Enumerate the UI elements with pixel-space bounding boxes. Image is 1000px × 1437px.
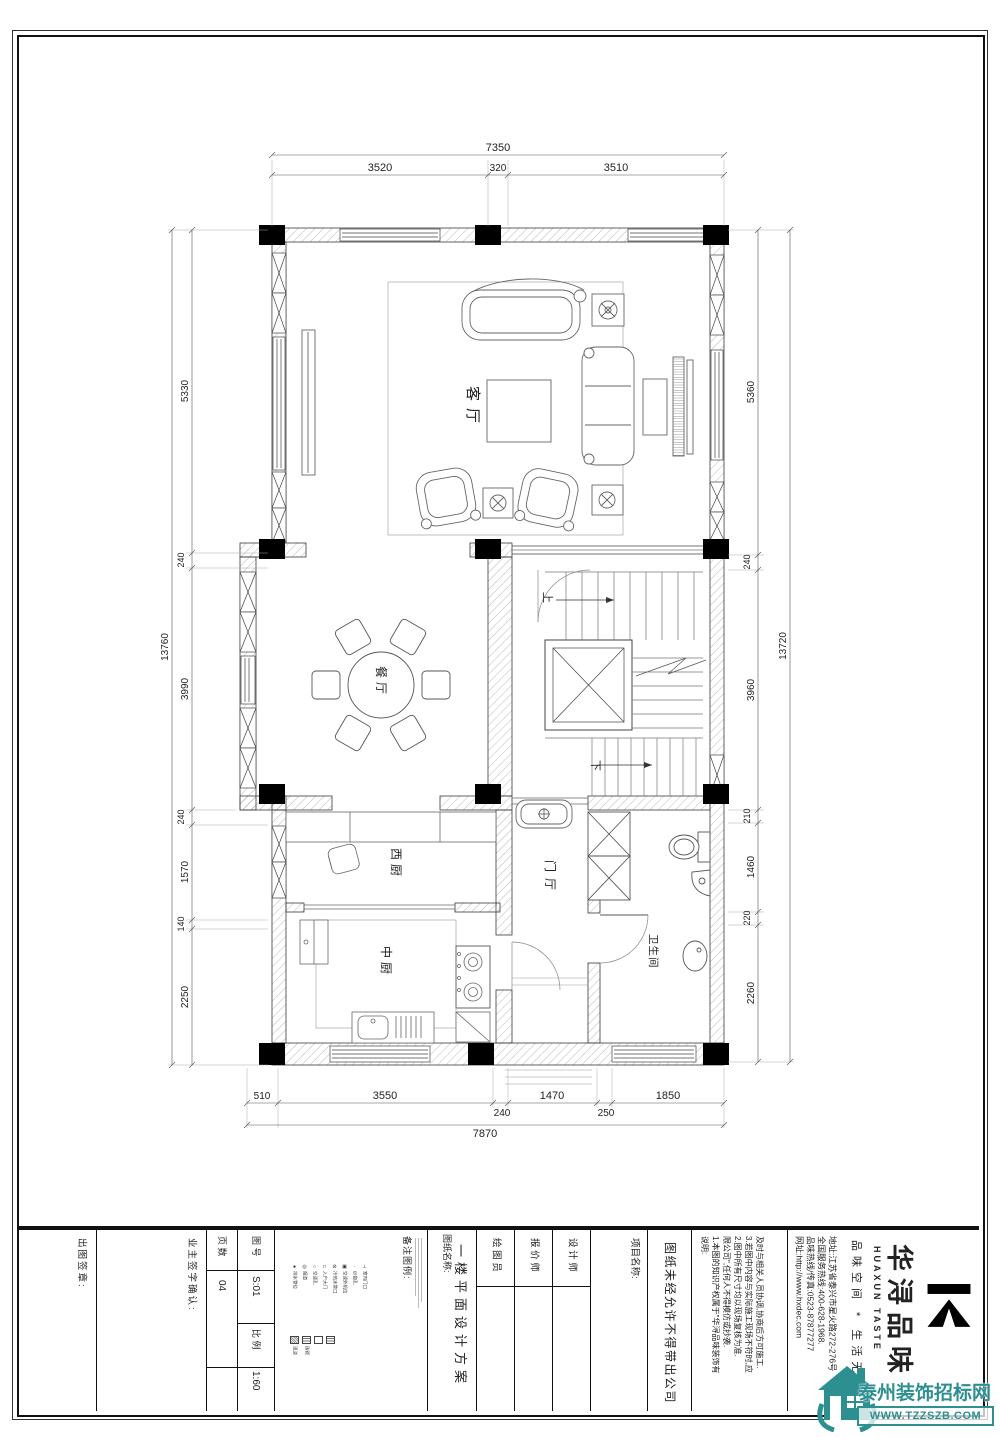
sheet-name: 一楼平面设计方案 [454, 1244, 467, 1388]
cell-figno-scale: 图 号 S:01 比 例 1:60 [238, 1230, 275, 1411]
legend-swatch-hatch [290, 1336, 299, 1344]
cell-warning: 图纸未经允许不得带出公司 [648, 1230, 692, 1411]
figno-label: 图 号 [251, 1236, 260, 1257]
cell-pages: 页 数 04 [207, 1230, 238, 1411]
dim-left-total: 13760 [160, 633, 171, 661]
cell-notes: 说明: 1.本图的知识产权属于"华浔品味装饰有 限公司",任何人不得模仿或抄袭.… [692, 1230, 788, 1411]
west-kitchen-label: 西厨 [389, 848, 403, 880]
dim-right-seg3: 210 [742, 808, 752, 823]
company-fax: 品味热线/传真:0523-87877277 [806, 1236, 815, 1351]
dim-bottom-seg5: 1850 [656, 1090, 680, 1102]
stair-up-label: 上 [541, 592, 554, 603]
designer-label: 设 计 师 [567, 1238, 577, 1272]
dim-top-seg0: 3520 [368, 162, 392, 174]
dim-right-seg2: 3960 [746, 678, 757, 701]
owner-sign-label: 业主签字确认: [187, 1238, 197, 1312]
cell-owner-sign: 业主签字确认: [97, 1230, 207, 1411]
dim-bottom-seg2: 240 [494, 1108, 511, 1119]
legend-swatch-empty [314, 1336, 323, 1344]
dim-top-seg2: 3510 [604, 162, 628, 174]
chinese-kitchen-fixtures [300, 905, 490, 1043]
pages-value: 04 [216, 1280, 226, 1291]
cell-stamp: 出图签章: [19, 1230, 97, 1411]
dim-left-seg3: 240 [176, 809, 186, 824]
stair-down-label: 下 [589, 760, 601, 771]
huaxun-k-logo-icon [926, 1284, 972, 1330]
drafter-label: 绘 图 员 [491, 1238, 501, 1272]
dim-left-seg2: 3990 [180, 677, 191, 700]
legend-item: ⊘冷热水管口 [330, 1264, 339, 1294]
watermark-name: 泰州装饰招标网 [858, 1378, 991, 1405]
dim-bottom-seg4: 250 [598, 1108, 615, 1119]
legend-item: □入户大门 [320, 1264, 329, 1289]
staircase [512, 546, 706, 796]
dim-right-total: 13720 [778, 632, 789, 660]
pages-label: 页 数 [217, 1236, 226, 1257]
dim-right-seg0: 5360 [746, 380, 757, 403]
foyer-fixtures [505, 798, 592, 1084]
legend-item: ○空调孔 [310, 1264, 319, 1285]
notes-line: 3.若图中内容与实际施工现场不符时,应 [744, 1236, 752, 1373]
dim-left-seg5: 140 [176, 916, 186, 931]
watermark-url: WWW.TZZSZB.COM [857, 1406, 994, 1426]
legend-item: ⊥室内门口 [360, 1264, 369, 1289]
foyer-label: 门厅 [543, 860, 558, 896]
dim-bottom-seg3: 1470 [540, 1090, 564, 1102]
dim-left-seg6: 2250 [180, 985, 191, 1008]
legend-item: ◎烟道 [300, 1264, 309, 1280]
scale-label: 比 例 [251, 1329, 260, 1350]
legend-item: ●排水管位 [290, 1264, 299, 1289]
dim-bottom-seg0: 510 [254, 1091, 271, 1102]
cell-legend: 备注图例: ●排水管位 ◎烟道 ○空调孔 □入户大门 ⊘冷热水管口 ▣空调外机位… [275, 1230, 428, 1411]
notes-line: 2.图中所有尺寸均以现场复核为准. [733, 1236, 741, 1357]
floor-plan: 客厅 餐厅 西厨 中厨 门厅 卫生间 上 下 [0, 0, 1000, 1226]
chinese-kitchen-label: 中厨 [379, 946, 394, 978]
dim-left-seg1: 240 [176, 552, 186, 567]
dim-right-seg6: 2260 [746, 981, 757, 1004]
notes-line: 及时与相关人员协调,协商后方可施工. [755, 1236, 763, 1368]
cell-drafter: 绘 图 员 [477, 1230, 515, 1411]
dim-right-seg1: 240 [742, 554, 752, 569]
legend-swatch-lines [302, 1336, 311, 1344]
cell-quoter: 报 价 师 [515, 1230, 553, 1411]
notes-line: 限公司",任何人不得模仿或抄袭. [722, 1236, 730, 1347]
quoter-label: 报 价 师 [529, 1238, 539, 1272]
living-room-label: 客厅 [464, 386, 481, 430]
company-hotline: 全国服务热线:400-628-1968. [817, 1236, 826, 1345]
legend-item: 现浇 [290, 1346, 299, 1355]
scale-value: 1:60 [250, 1371, 260, 1390]
cell-project-name: 项目名称: [591, 1230, 648, 1411]
bathroom-label: 卫生间 [647, 934, 660, 969]
dim-right-seg4: 1460 [746, 855, 757, 878]
notes-line: 1.本图的知识产权属于"华浔品味装饰有 [711, 1236, 719, 1374]
dim-top-total: 7350 [486, 142, 510, 154]
company-address: 地址:江苏省泰兴市星火路272-276号 [828, 1236, 837, 1372]
legend-item: 砖砌 [302, 1346, 311, 1355]
dim-left-seg0: 5330 [180, 379, 191, 402]
dim-right-seg5: 220 [742, 910, 752, 925]
dim-left-seg4: 1570 [180, 860, 191, 883]
dim-bottom-total: 7870 [473, 1128, 497, 1140]
dim-bottom-seg1: 3550 [373, 1090, 397, 1102]
cell-sheet-name: 图纸名称: 一楼平面设计方案 [428, 1230, 477, 1411]
legend-item: ·纱窗孔 [350, 1264, 359, 1285]
notes-line: 说明: [700, 1236, 708, 1254]
dining-room-label: 餐厅 [374, 666, 389, 698]
company-web: 网址:http://www.hxdec.com [795, 1236, 804, 1338]
figno-value: S:01 [250, 1276, 260, 1297]
legend-swatch-lines2 [326, 1336, 335, 1344]
dim-top-seg1: 320 [490, 163, 507, 174]
cell-designer: 设 计 师 [553, 1230, 591, 1411]
legend-item: ▣空调外机位 [340, 1264, 349, 1294]
company-brand-en: HUAXUN TASTE [872, 1246, 881, 1352]
project-label: 项目名称: [630, 1238, 640, 1279]
stamp-label: 出图签章: [77, 1238, 87, 1289]
company-brand: 华浔品味 [885, 1244, 912, 1380]
legend-label: 备注图例: [402, 1236, 411, 1280]
living-room-furniture [302, 279, 693, 535]
sheet-name-label: 图纸名称: [442, 1234, 451, 1273]
warning-text: 图纸未经允许不得带出公司 [664, 1242, 676, 1404]
